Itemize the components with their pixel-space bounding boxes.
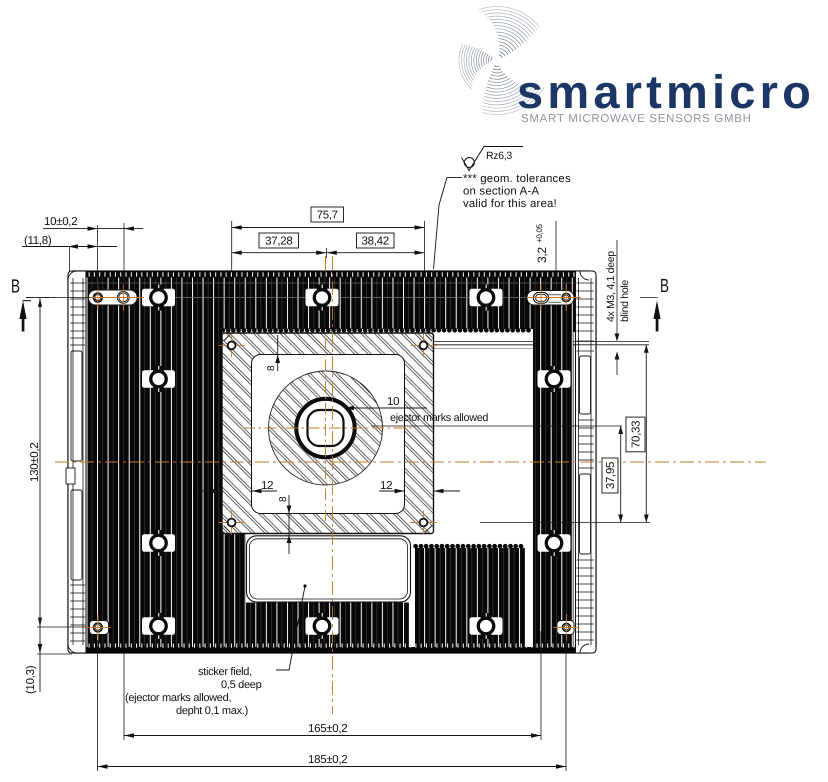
svg-text:37,28: 37,28 <box>265 235 292 247</box>
svg-text:38,42: 38,42 <box>362 235 389 247</box>
svg-text:0,5 deep: 0,5 deep <box>221 679 262 691</box>
svg-text:8: 8 <box>278 496 289 502</box>
svg-text:(ejector marks allowed,: (ejector marks allowed, <box>125 692 231 704</box>
svg-text:12: 12 <box>261 480 273 492</box>
svg-text:8: 8 <box>266 365 277 371</box>
svg-text:Rz6,3: Rz6,3 <box>486 150 512 162</box>
svg-text:(10,3): (10,3) <box>25 665 37 694</box>
svg-text:165±0,2: 165±0,2 <box>308 723 347 735</box>
svg-text:10: 10 <box>387 396 399 408</box>
svg-text:+0,05: +0,05 <box>535 223 544 243</box>
svg-text:12: 12 <box>380 480 392 492</box>
svg-text:(11,8): (11,8) <box>24 235 52 247</box>
svg-text:valid for this area!: valid for this area! <box>463 198 557 210</box>
svg-text:ejector marks allowed: ejector marks allowed <box>390 412 488 424</box>
svg-text:B: B <box>11 277 20 298</box>
svg-text:B: B <box>660 276 669 297</box>
svg-text:4x M3, 4,1 deep: 4x M3, 4,1 deep <box>605 251 617 322</box>
svg-text:3,2: 3,2 <box>535 247 549 263</box>
svg-text:75,7: 75,7 <box>317 209 338 221</box>
svg-text:blind hole: blind hole <box>619 280 631 322</box>
svg-text:70,33: 70,33 <box>630 421 642 448</box>
svg-text:*** geom. tolerances: *** geom. tolerances <box>463 173 571 185</box>
svg-text:sticker field,: sticker field, <box>198 666 252 678</box>
svg-text:10±0,2: 10±0,2 <box>44 216 77 228</box>
svg-text:smartmicro: smartmicro <box>517 65 815 118</box>
svg-text:depht 0,1 max.): depht 0,1 max.) <box>176 705 248 717</box>
svg-text:185±0,2: 185±0,2 <box>308 754 347 766</box>
svg-text:on section A-A: on section A-A <box>463 186 539 198</box>
svg-text:37,95: 37,95 <box>605 462 617 489</box>
svg-text:SMART MICROWAVE SENSORS GMBH: SMART MICROWAVE SENSORS GMBH <box>521 113 752 125</box>
svg-text:130±0,2: 130±0,2 <box>29 443 41 482</box>
